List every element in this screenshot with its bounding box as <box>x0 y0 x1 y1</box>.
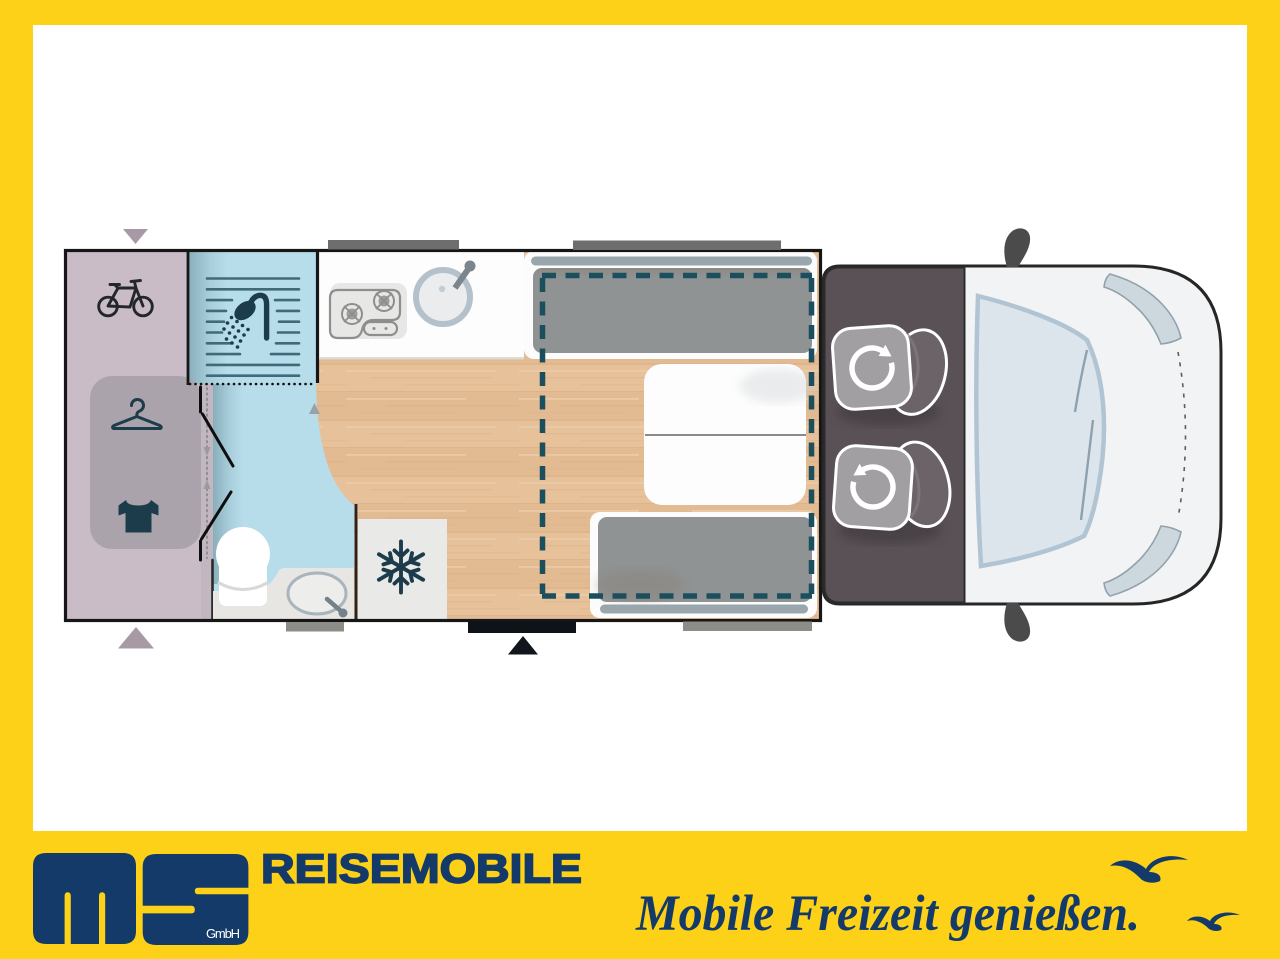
svg-text:GmbH: GmbH <box>206 926 240 941</box>
svg-text:REISEMOBILE: REISEMOBILE <box>261 846 582 892</box>
svg-text:Mobile Freizeit genießen.: Mobile Freizeit genießen. <box>635 886 1140 942</box>
